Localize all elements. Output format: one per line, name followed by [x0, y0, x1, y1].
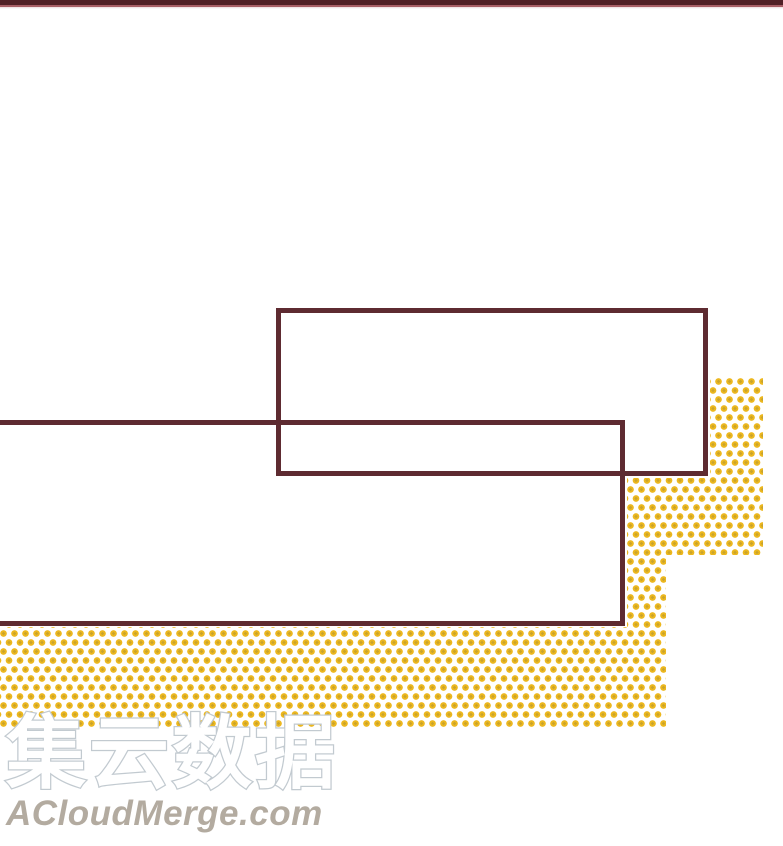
- watermark-site: ACloudMerge.com: [6, 796, 338, 831]
- comic-page: 集云数据 ACloudMerge.com: [0, 0, 783, 846]
- watermark: 集云数据 ACloudMerge.com: [6, 710, 338, 831]
- watermark-title: 集云数据: [6, 710, 338, 798]
- speech-box-bottom: [0, 420, 625, 626]
- top-border-bar: [0, 0, 783, 9]
